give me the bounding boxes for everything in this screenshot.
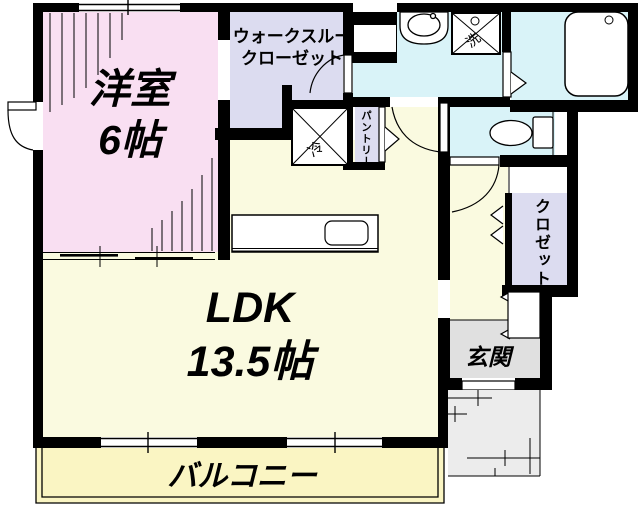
- toilet: [490, 117, 553, 148]
- western-room-label: 洋室 6帖: [89, 64, 171, 167]
- kitchen-corridor-door: [392, 103, 448, 152]
- washroom-niche: [353, 25, 397, 52]
- sliding-partition: [43, 246, 215, 267]
- western-room-size: 6帖: [89, 115, 171, 166]
- walk-through-closet-label: ウォークスルー クローゼット: [233, 26, 352, 70]
- bathtub: [565, 12, 628, 96]
- entrance-label: 玄関: [465, 343, 511, 372]
- wash-basin: [400, 12, 448, 44]
- ldk-label: LDK 13.5帖: [187, 282, 314, 390]
- pantry-label: パントリー: [359, 110, 374, 168]
- ldk-size: 13.5帖: [187, 336, 314, 390]
- entrance-porch: [448, 390, 540, 476]
- pantry-folding-door: [379, 107, 399, 162]
- toilet-door: [450, 157, 499, 212]
- balcony-label: バルコニー: [167, 458, 316, 496]
- western-room-name: 洋室: [89, 64, 171, 115]
- wtc-line2: クローゼット: [233, 48, 352, 70]
- bathroom-folding-door: [503, 52, 526, 97]
- closet-bifold-markers: [491, 206, 503, 244]
- shoe-cabinet: [508, 292, 540, 338]
- western-room-exterior-door: [8, 102, 36, 150]
- floor-plan: 洋室 6帖 ウォークスルー クローゼット LDK 13.5帖 バルコニー 玄関 …: [0, 0, 640, 515]
- ldk-name: LDK: [187, 282, 314, 336]
- wtc-line1: ウォークスルー: [233, 26, 352, 48]
- kitchen-counter: [232, 215, 378, 252]
- closet-label: クロゼット: [528, 198, 552, 288]
